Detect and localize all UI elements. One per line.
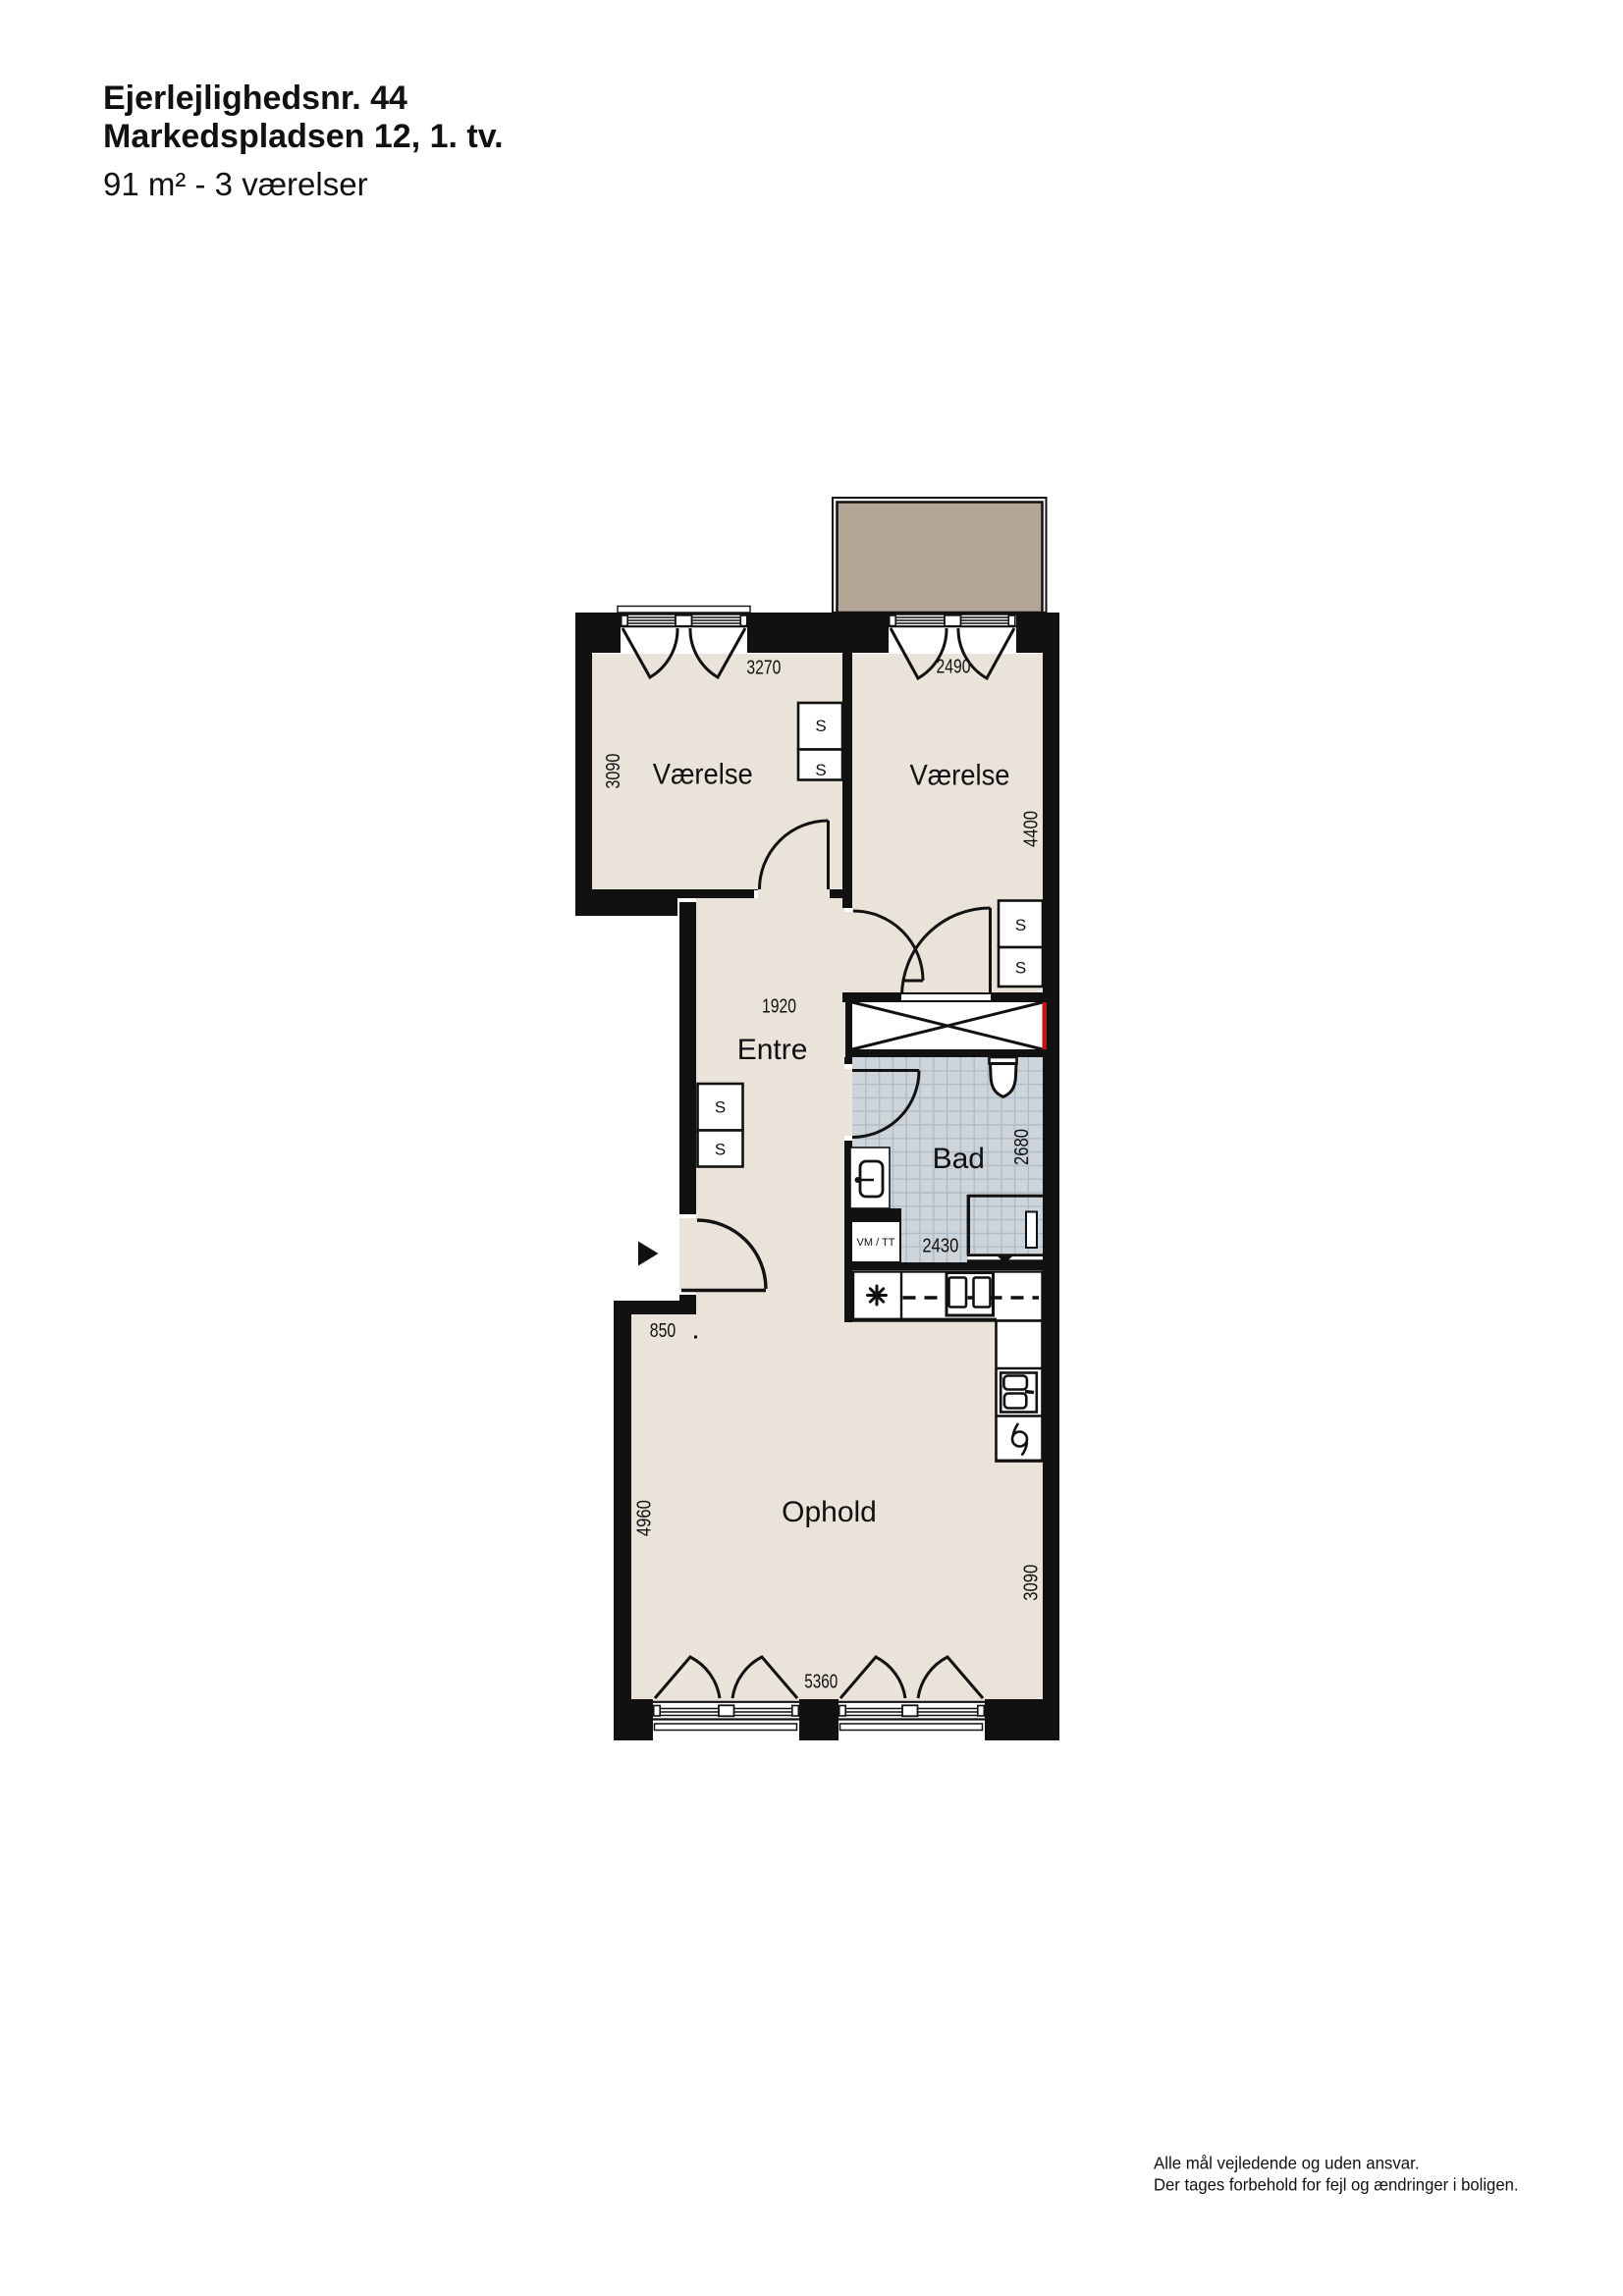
svg-text:S: S [715, 1141, 726, 1159]
svg-text:Alle mål vejledende og uden an: Alle mål vejledende og uden ansvar. [1154, 2154, 1420, 2173]
svg-text:VM / TT: VM / TT [857, 1237, 895, 1249]
svg-text:S: S [1015, 916, 1026, 934]
svg-text:Entre: Entre [737, 1034, 808, 1066]
svg-text:850: 850 [650, 1320, 676, 1342]
svg-text:S: S [715, 1098, 726, 1117]
svg-text:S: S [815, 761, 826, 779]
svg-text:Værelse: Værelse [910, 760, 1010, 792]
svg-text:Ophold: Ophold [782, 1496, 877, 1528]
svg-text:1920: 1920 [762, 996, 796, 1018]
svg-text:Værelse: Værelse [653, 759, 753, 791]
svg-text:2490: 2490 [937, 657, 971, 678]
svg-text:Ejerlejlighedsnr. 44: Ejerlejlighedsnr. 44 [103, 80, 407, 117]
svg-text:Markedspladsen 12, 1. tv.: Markedspladsen 12, 1. tv. [103, 118, 504, 155]
svg-text:2430: 2430 [922, 1236, 958, 1257]
svg-text:5360: 5360 [804, 1672, 838, 1693]
svg-text:S: S [1015, 959, 1026, 978]
svg-text:S: S [815, 717, 826, 735]
svg-text:3090: 3090 [1021, 1565, 1043, 1601]
svg-text:Der tages forbehold for fejl o: Der tages forbehold for fejl og ændringe… [1154, 2175, 1519, 2195]
svg-text:91 m² - 3 værelser: 91 m² - 3 værelser [103, 166, 368, 202]
svg-text:2680: 2680 [1011, 1129, 1033, 1165]
svg-text:4400: 4400 [1021, 811, 1043, 847]
svg-text:4960: 4960 [634, 1500, 656, 1536]
svg-text:3090: 3090 [603, 754, 624, 789]
svg-text:Bad: Bad [933, 1143, 985, 1175]
svg-text:3270: 3270 [746, 658, 781, 679]
